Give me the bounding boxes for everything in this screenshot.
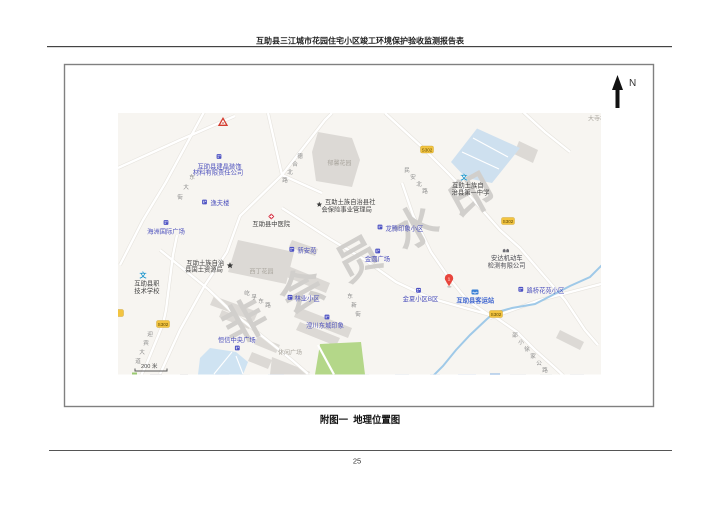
svg-text:会保险事业管理局: 会保险事业管理局	[322, 204, 372, 213]
svg-text:邵: 邵	[512, 331, 518, 339]
svg-text:德: 德	[297, 152, 303, 160]
svg-text:S302: S302	[422, 148, 433, 153]
svg-text:S302: S302	[503, 219, 514, 224]
svg-text:郁馨花园: 郁馨花园	[327, 159, 351, 167]
svg-text:互助土族自治县社: 互助土族自治县社	[325, 197, 376, 206]
svg-text:新安苑: 新安苑	[298, 245, 318, 254]
svg-text:东: 东	[347, 292, 353, 300]
svg-text:逸夫楼: 逸夫楼	[211, 198, 231, 207]
svg-text:大: 大	[139, 348, 145, 356]
svg-text:1: 1	[448, 276, 451, 282]
svg-text:屹: 屹	[244, 289, 250, 297]
svg-text:治县第一中学: 治县第一中学	[452, 188, 490, 197]
svg-text:路: 路	[282, 176, 288, 184]
svg-text:附图一 地理位置图: 附图一 地理位置图	[320, 414, 400, 425]
svg-text:合: 合	[292, 160, 298, 168]
svg-text:大: 大	[183, 183, 189, 191]
svg-text:街: 街	[177, 193, 183, 201]
svg-text:安: 安	[410, 173, 416, 181]
svg-text:路: 路	[422, 187, 428, 195]
svg-text:街: 街	[355, 310, 361, 318]
svg-text:县国土资源局: 县国土资源局	[185, 265, 223, 274]
svg-text:互助县三江城市花园住宅小区竣工环境保护验收监测报告表: 互助县三江城市花园住宅小区竣工环境保护验收监测报告表	[256, 36, 465, 46]
svg-text:互助土族自: 互助土族自	[452, 181, 483, 190]
svg-text:龙腾印象小区: 龙腾印象小区	[386, 223, 424, 232]
svg-text:路: 路	[265, 301, 271, 309]
svg-text:S302: S302	[491, 312, 502, 317]
svg-text:S302: S302	[158, 322, 169, 327]
svg-text:公: 公	[536, 361, 542, 367]
svg-text:林业小区: 林业小区	[295, 293, 320, 302]
svg-text:恒信中央广场: 恒信中央广场	[218, 335, 256, 344]
svg-text:东: 东	[258, 297, 264, 305]
svg-text:金圆广场: 金圆广场	[365, 254, 390, 263]
svg-text:海洲国际广场: 海洲国际广场	[147, 227, 185, 236]
svg-text:路: 路	[542, 366, 548, 374]
svg-text:迎: 迎	[147, 330, 153, 338]
svg-text:徐: 徐	[524, 345, 530, 353]
svg-text:小: 小	[518, 338, 524, 346]
svg-text:互助县中医院: 互助县中医院	[252, 219, 290, 228]
svg-text:路桥花苑小区: 路桥花苑小区	[527, 286, 565, 295]
svg-text:互助县客运站: 互助县客运站	[456, 295, 494, 304]
svg-text:孚: 孚	[251, 293, 257, 301]
svg-text:安达机动车: 安达机动车	[491, 253, 522, 262]
svg-text:道: 道	[135, 357, 141, 365]
svg-text:25: 25	[353, 457, 361, 466]
svg-text:互助县职: 互助县职	[134, 279, 160, 288]
svg-text:北: 北	[416, 180, 422, 188]
svg-text:N: N	[629, 78, 636, 89]
svg-text:民: 民	[404, 167, 410, 174]
svg-text:宾: 宾	[143, 339, 149, 347]
svg-text:材料有限责任公司: 材料有限责任公司	[193, 168, 243, 177]
svg-text:北: 北	[287, 168, 293, 176]
svg-text:新: 新	[351, 301, 357, 309]
svg-text:200 米: 200 米	[141, 362, 158, 370]
svg-text:西丁花园: 西丁花园	[249, 268, 273, 276]
svg-text:湟川东城印象: 湟川东城印象	[306, 321, 344, 330]
svg-text:检测有限公司: 检测有限公司	[488, 261, 526, 270]
svg-text:家: 家	[530, 352, 536, 360]
svg-text:休闲广场: 休闲广场	[278, 349, 302, 357]
svg-text:金夏小区B区: 金夏小区B区	[403, 294, 439, 303]
svg-text:技术学校: 技术学校	[134, 286, 160, 295]
